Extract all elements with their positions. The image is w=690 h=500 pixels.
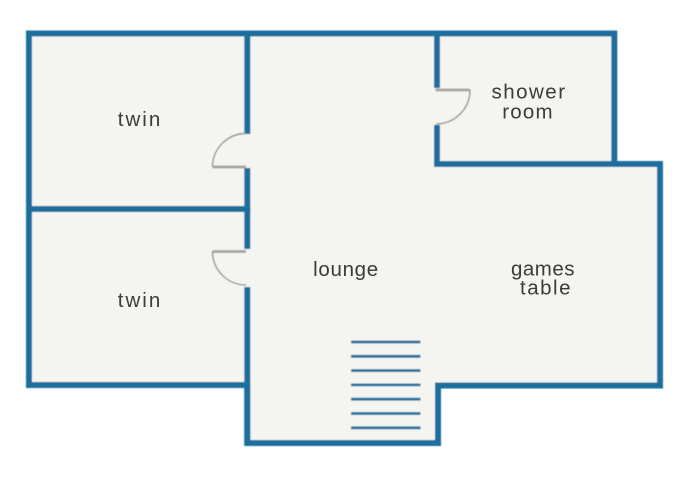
svg-text:twin: twin [118,108,162,131]
svg-text:room: room [502,101,554,124]
svg-text:lounge: lounge [313,258,379,281]
svg-text:table: table [520,277,572,300]
svg-text:twin: twin [118,289,162,312]
